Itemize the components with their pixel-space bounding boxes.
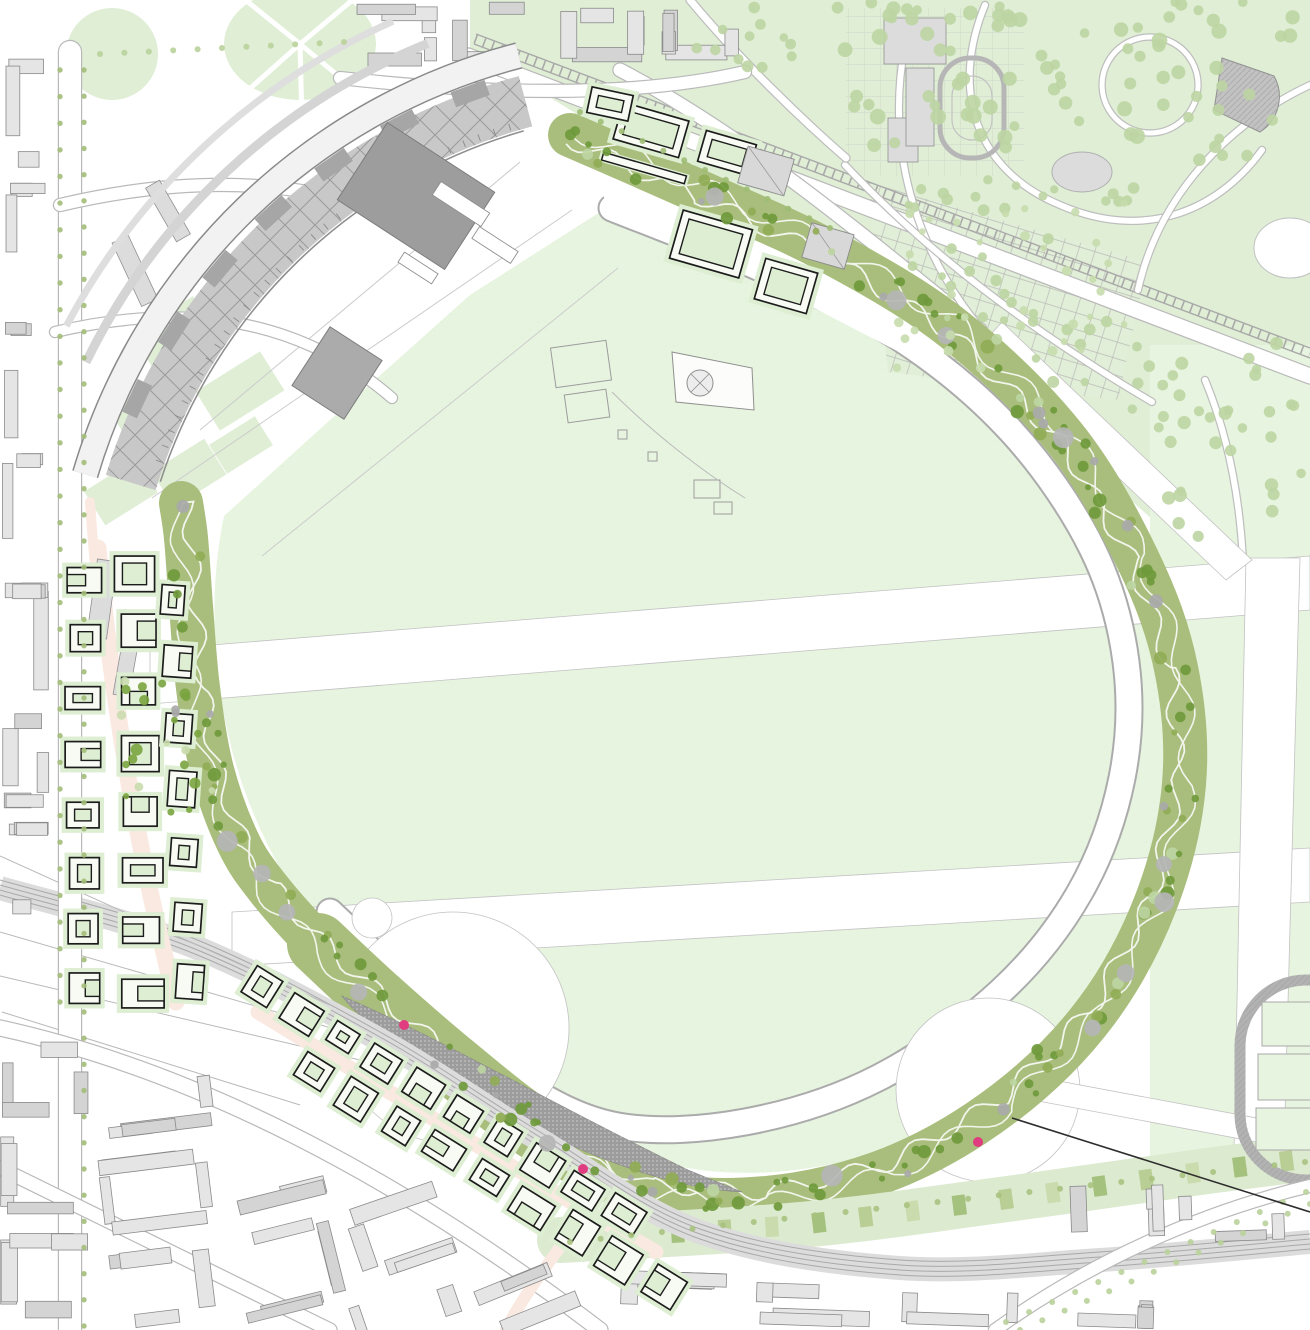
sports-br-fields bbox=[1256, 1002, 1310, 1150]
masterplan-map[interactable] bbox=[0, 0, 1310, 1330]
white-circle-bump bbox=[352, 898, 392, 938]
park-pond bbox=[1052, 152, 1112, 192]
map-viewport[interactable] bbox=[0, 0, 1310, 1330]
